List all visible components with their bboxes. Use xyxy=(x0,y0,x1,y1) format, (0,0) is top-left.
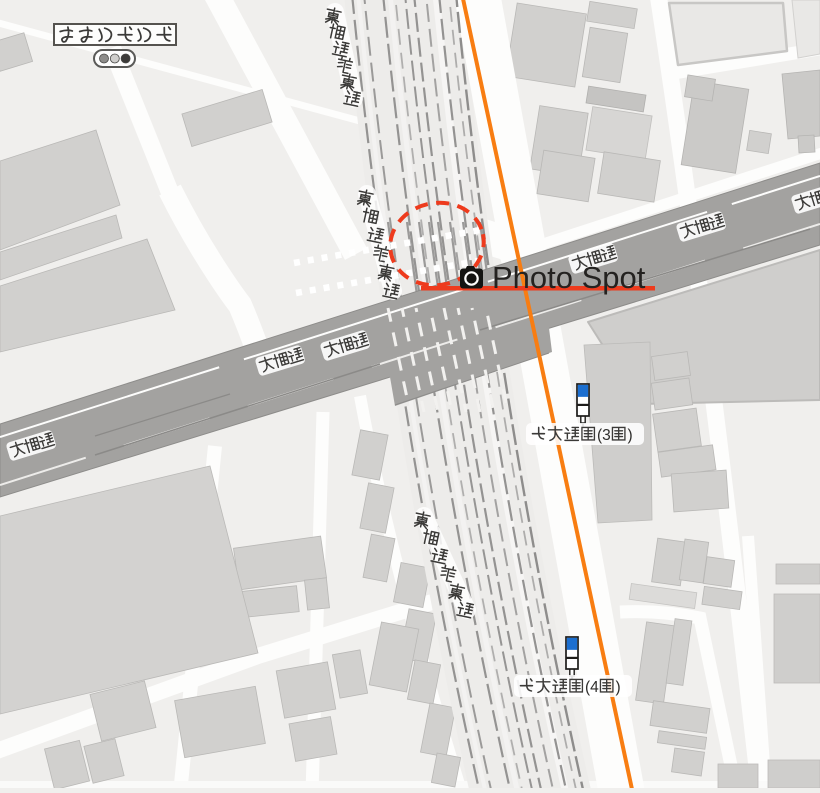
svg-text:(3: (3 xyxy=(597,427,611,444)
svg-text:): ) xyxy=(628,427,633,444)
svg-text:Photo Spot: Photo Spot xyxy=(492,260,646,295)
svg-text:): ) xyxy=(616,679,621,696)
svg-text:(4: (4 xyxy=(585,679,599,696)
